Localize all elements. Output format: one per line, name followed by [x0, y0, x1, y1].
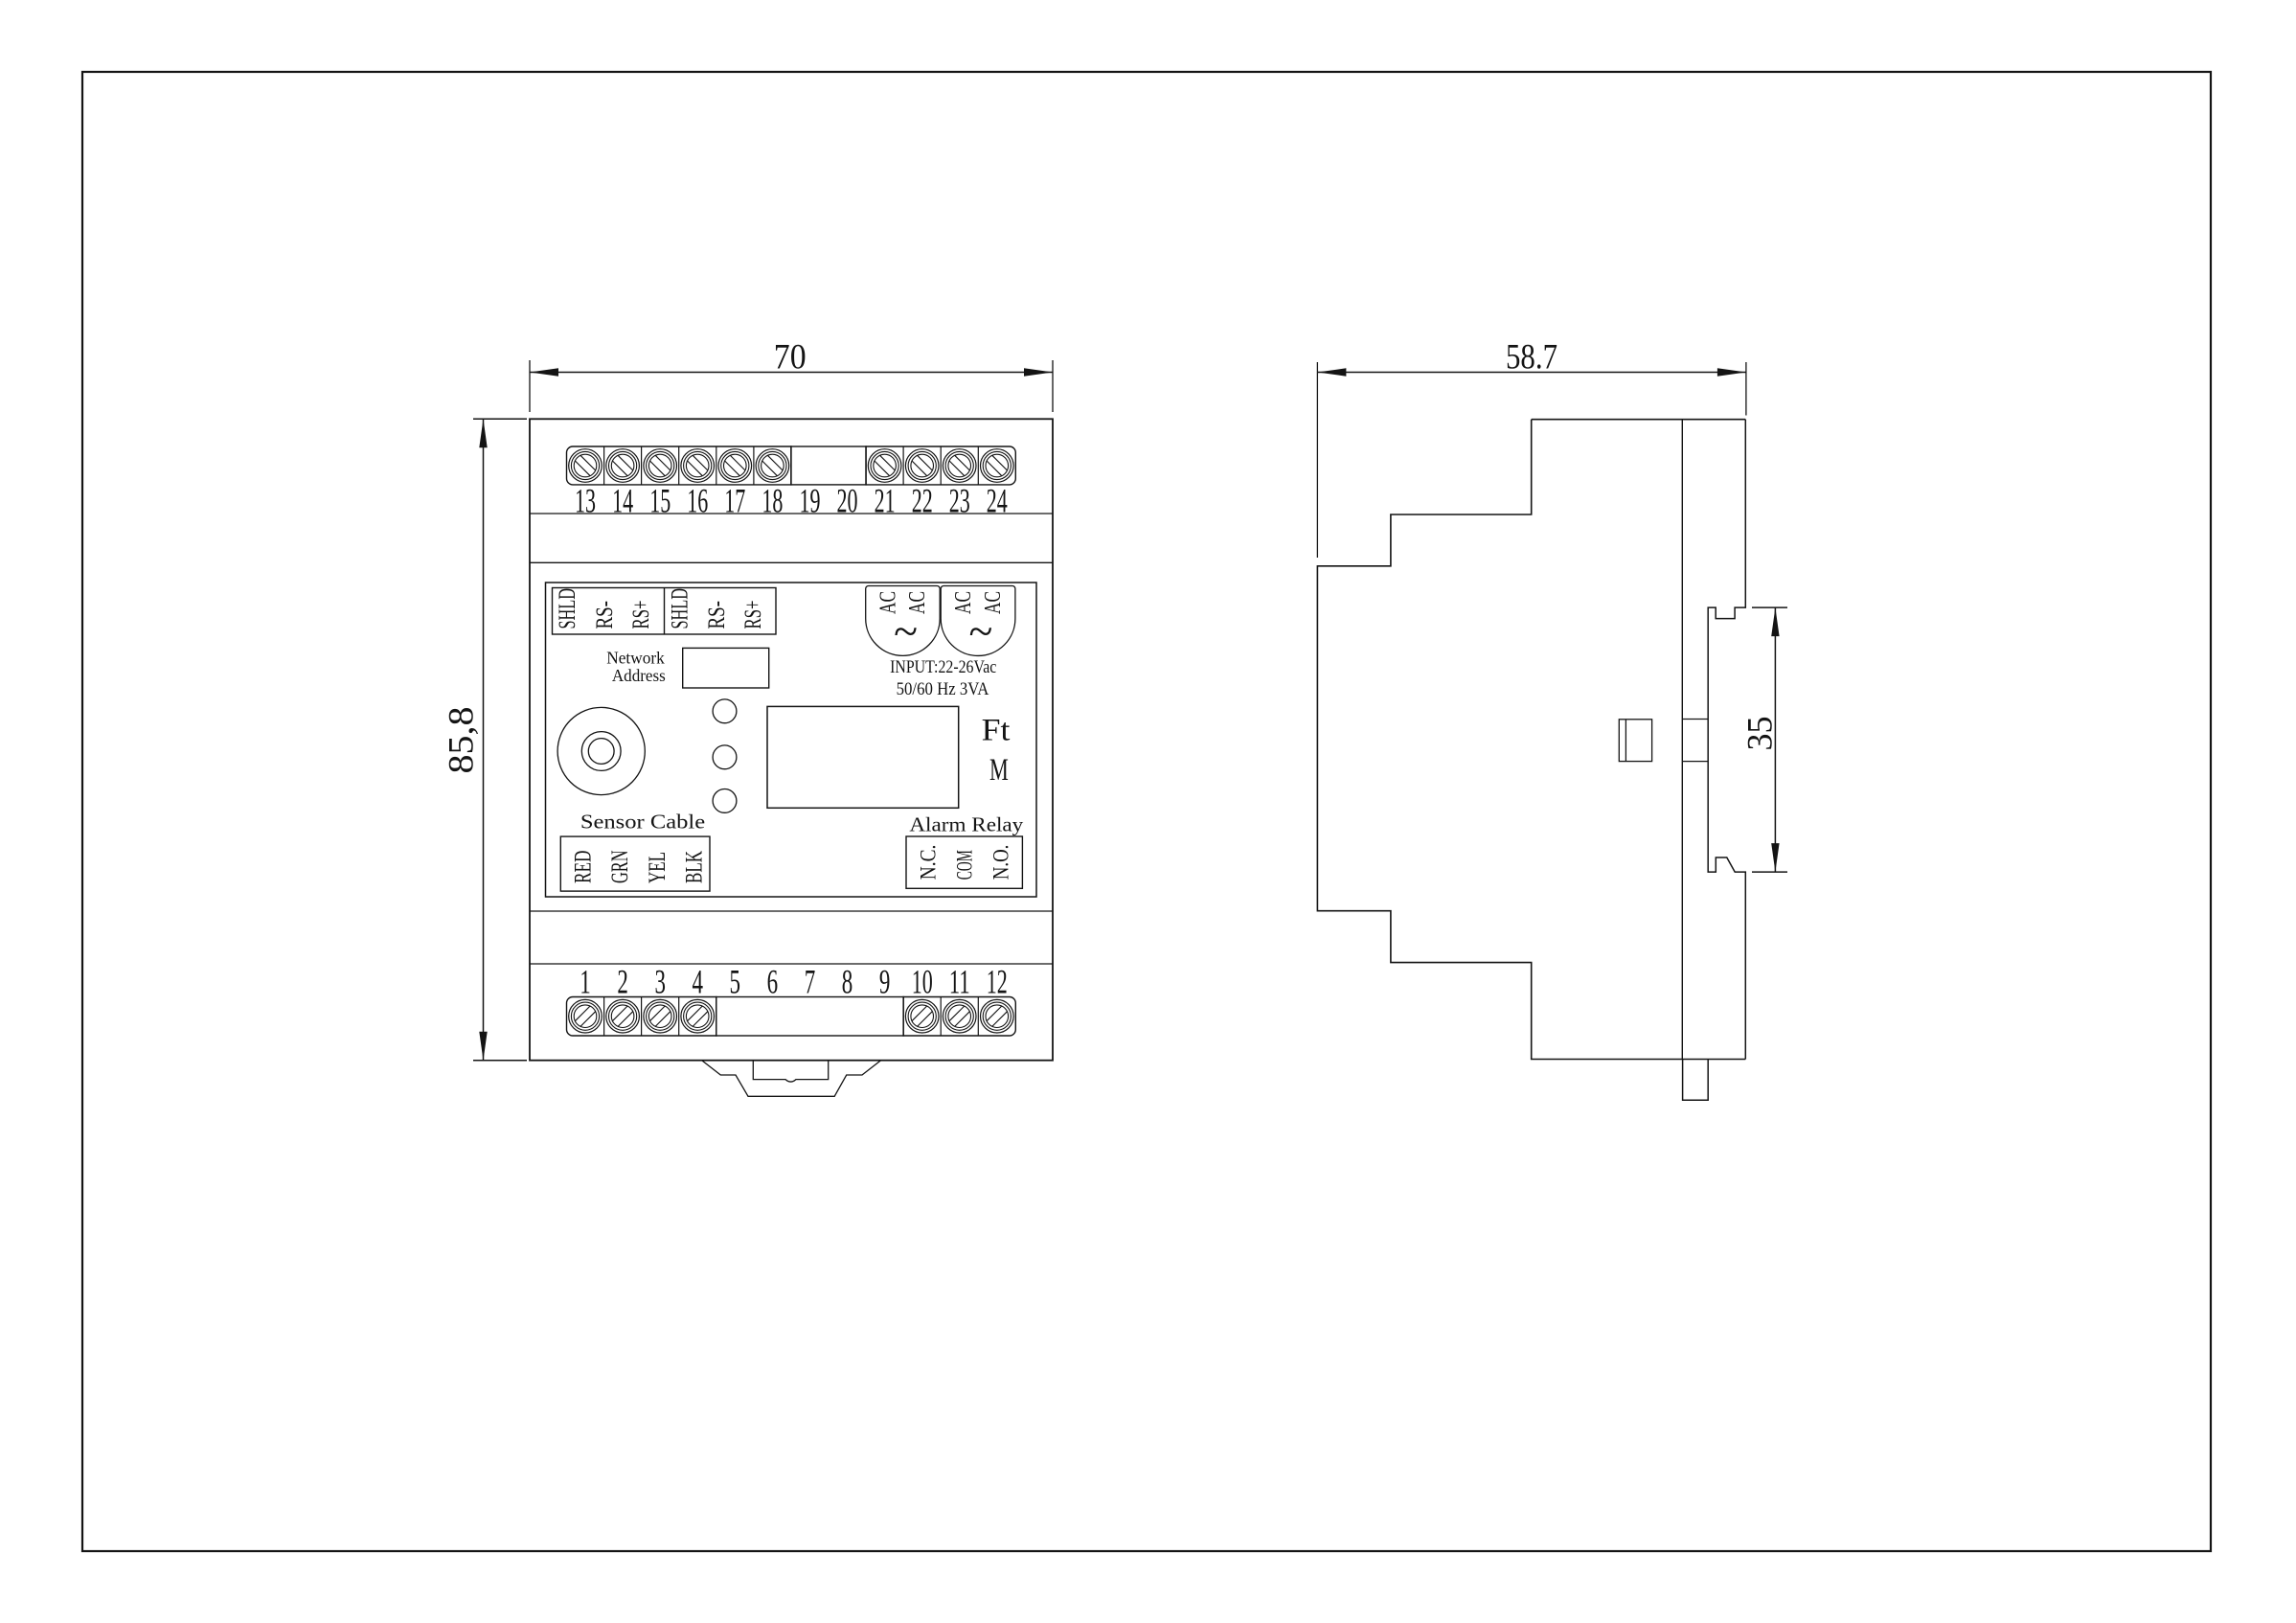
svg-text:19: 19 [800, 482, 821, 520]
svg-text:21: 21 [875, 482, 896, 520]
svg-text:Ft: Ft [982, 714, 1011, 748]
svg-text:BLK: BLK [682, 851, 708, 883]
svg-text:3: 3 [654, 963, 666, 1001]
svg-text:9: 9 [879, 963, 891, 1001]
svg-text:~: ~ [969, 606, 993, 655]
svg-text:1: 1 [580, 963, 591, 1001]
svg-text:Alarm Relay: Alarm Relay [909, 813, 1023, 836]
svg-text:16: 16 [687, 482, 708, 520]
svg-text:6: 6 [767, 963, 779, 1001]
svg-text:GRN: GRN [607, 851, 633, 884]
svg-text:SHLD: SHLD [555, 588, 580, 629]
svg-text:58.7: 58.7 [1506, 338, 1557, 377]
svg-text:15: 15 [649, 482, 671, 520]
svg-text:N.C.: N.C. [917, 845, 941, 880]
svg-text:23: 23 [949, 482, 970, 520]
svg-text:Address: Address [612, 666, 666, 685]
svg-text:10: 10 [912, 963, 933, 1001]
svg-text:13: 13 [575, 482, 596, 520]
svg-text:35: 35 [1741, 717, 1781, 751]
svg-text:70: 70 [774, 338, 807, 377]
svg-text:Sensor Cable: Sensor Cable [580, 811, 705, 834]
svg-text:RS-: RS- [704, 601, 730, 629]
svg-text:50/60 Hz 3VA: 50/60 Hz 3VA [897, 680, 989, 699]
svg-text:14: 14 [612, 482, 633, 520]
svg-text:COM: COM [953, 850, 977, 880]
svg-text:17: 17 [724, 482, 745, 520]
svg-text:RED: RED [570, 851, 596, 884]
svg-text:24: 24 [987, 482, 1008, 520]
svg-text:5: 5 [730, 963, 741, 1001]
svg-text:12: 12 [987, 963, 1008, 1001]
svg-text:4: 4 [692, 963, 703, 1001]
svg-text:20: 20 [837, 482, 858, 520]
svg-text:2: 2 [617, 963, 628, 1001]
svg-text:M: M [989, 753, 1009, 788]
svg-text:18: 18 [762, 482, 783, 520]
svg-text:22: 22 [912, 482, 933, 520]
svg-text:~: ~ [894, 606, 918, 655]
svg-text:RS+: RS+ [628, 601, 654, 629]
svg-text:RS+: RS+ [740, 601, 766, 629]
svg-text:N.O.: N.O. [989, 845, 1013, 880]
svg-text:11: 11 [949, 963, 970, 1001]
svg-text:INPUT:22-26Vac: INPUT:22-26Vac [890, 658, 996, 677]
svg-text:85,8: 85,8 [443, 707, 482, 774]
svg-text:7: 7 [805, 963, 816, 1001]
svg-text:YEL: YEL [645, 852, 671, 883]
svg-text:Network: Network [606, 649, 665, 668]
svg-text:RS-: RS- [592, 601, 618, 629]
svg-text:8: 8 [842, 963, 853, 1001]
svg-text:SHLD: SHLD [667, 588, 693, 629]
